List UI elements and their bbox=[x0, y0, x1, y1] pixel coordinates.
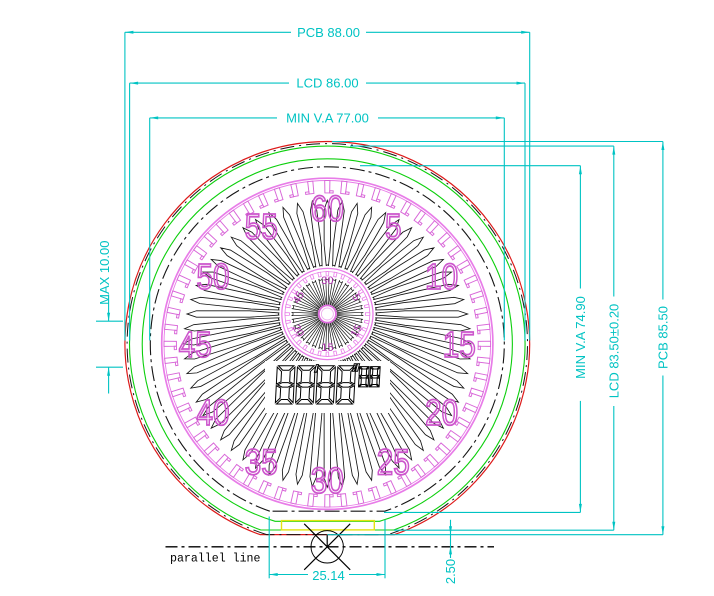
svg-text:LCD 86.00: LCD 86.00 bbox=[296, 76, 358, 91]
svg-text:35: 35 bbox=[245, 442, 278, 483]
svg-text:50: 50 bbox=[197, 256, 230, 297]
svg-text:MAX 10.00: MAX 10.00 bbox=[97, 241, 112, 305]
svg-text:40: 40 bbox=[197, 392, 230, 433]
svg-text:MIN V.A 77.00: MIN V.A 77.00 bbox=[286, 111, 369, 126]
svg-text:2.50: 2.50 bbox=[443, 559, 458, 584]
svg-text:5: 5 bbox=[385, 206, 402, 247]
svg-text:15: 15 bbox=[321, 342, 333, 354]
svg-text:55: 55 bbox=[245, 206, 278, 247]
svg-text:parallel line: parallel line bbox=[170, 553, 260, 566]
svg-text:45: 45 bbox=[179, 324, 212, 365]
svg-text:20: 20 bbox=[425, 392, 458, 433]
svg-text:25: 25 bbox=[377, 442, 410, 483]
svg-text:30: 30 bbox=[321, 275, 333, 287]
svg-text:PCB 85.50: PCB 85.50 bbox=[656, 306, 671, 369]
svg-text:LCD 83.50±0.20: LCD 83.50±0.20 bbox=[607, 304, 622, 399]
svg-text:60: 60 bbox=[311, 188, 344, 229]
svg-text:30: 30 bbox=[311, 460, 344, 501]
svg-text:MIN V.A 74.90: MIN V.A 74.90 bbox=[573, 296, 588, 379]
svg-text:25.14: 25.14 bbox=[312, 568, 345, 583]
svg-text:PCB 88.00: PCB 88.00 bbox=[297, 25, 360, 40]
svg-text:15: 15 bbox=[443, 324, 476, 365]
svg-text:10: 10 bbox=[425, 256, 458, 297]
